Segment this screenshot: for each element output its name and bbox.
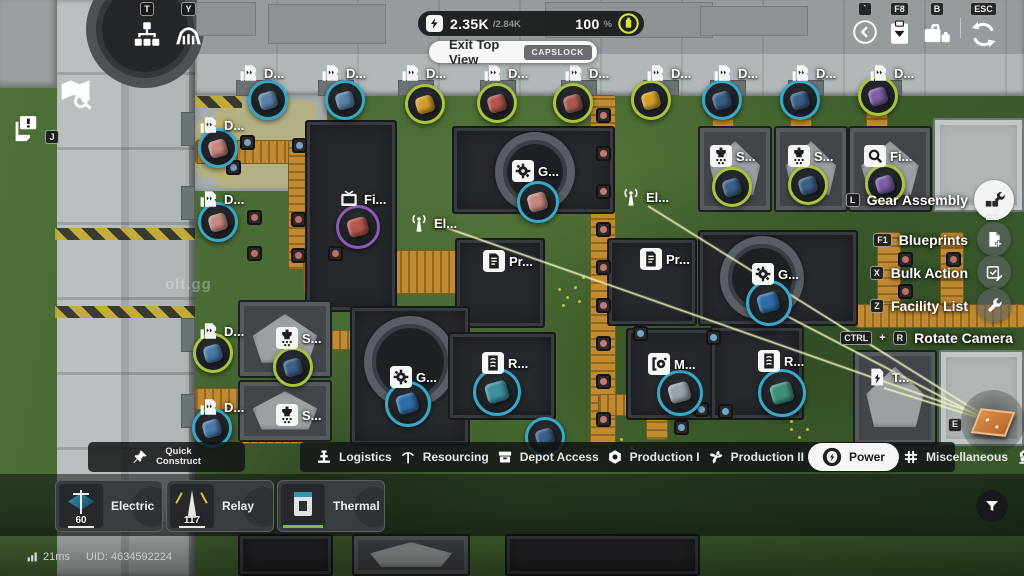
item-blob <box>867 85 889 106</box>
conveyor-node <box>596 260 611 275</box>
electricity-icon <box>426 15 443 32</box>
menu-item-bulk-action[interactable]: XBulk Action <box>870 265 968 281</box>
rooftop-panel <box>268 4 386 44</box>
item-marker[interactable] <box>780 80 820 120</box>
m-dock-icon <box>198 396 220 418</box>
back-icon <box>852 19 878 45</box>
m-gear-icon <box>512 160 534 182</box>
item-blob <box>484 379 511 404</box>
item-blob <box>207 137 229 158</box>
facility-marker[interactable]: Fi... <box>338 188 386 210</box>
item-blob <box>562 92 584 113</box>
conveyor-node <box>718 404 733 419</box>
power-capacity-value: /2.84K <box>493 19 521 30</box>
grass-speckle <box>806 428 809 431</box>
card-thermal-bank[interactable]: ThermalBank <box>277 480 385 532</box>
card-thumbnail: 60 <box>59 484 103 528</box>
facility-marker[interactable]: G... <box>512 160 559 182</box>
conveyor-node <box>706 330 721 345</box>
map-search-icon <box>58 76 94 112</box>
conveyor-belt[interactable] <box>330 330 352 350</box>
facility-label: S... <box>302 331 322 346</box>
item-marker[interactable] <box>758 369 806 417</box>
facility-label: D... <box>346 66 366 81</box>
tab-production-ii[interactable]: Production II <box>704 443 808 471</box>
power-current-value: 2.35K <box>450 16 489 32</box>
m-doc-icon <box>640 248 662 270</box>
conveyor-node <box>596 412 611 427</box>
hud-divider <box>960 18 961 38</box>
facility-label: D... <box>738 66 758 81</box>
interact-key-hint: E <box>948 414 962 432</box>
blueprint-icon-button[interactable] <box>977 222 1011 256</box>
battery-icon <box>617 12 640 35</box>
facility-label: R... <box>784 354 804 369</box>
power-status-bar: 2.35K /2.84K 100 % <box>418 11 644 36</box>
capslock-key-hint: CAPSLOCK <box>524 45 593 60</box>
assembly-icon <box>983 189 1005 211</box>
thermal-pipe <box>294 492 312 497</box>
hazard-stripe <box>55 228 195 240</box>
facility-marker[interactable]: D... <box>563 62 609 84</box>
m-antenna-icon <box>620 186 642 208</box>
bulk-icon-button[interactable] <box>977 255 1011 289</box>
facility-marker[interactable]: D... <box>790 62 836 84</box>
notice-icon <box>10 112 40 144</box>
key-hint: L <box>846 193 860 207</box>
notice-button[interactable]: J <box>10 112 59 144</box>
rotate-icon <box>968 19 999 50</box>
facility-label: D... <box>224 118 244 133</box>
menu-item-label: Bulk Action <box>891 265 968 281</box>
facility-marker[interactable]: D... <box>712 62 758 84</box>
facility-label: El... <box>646 190 669 205</box>
card-relay-tower[interactable]: 117RelayTower <box>166 480 274 532</box>
facility-label: R... <box>508 356 528 371</box>
conveyor-node <box>596 184 611 199</box>
item-blob <box>526 191 549 213</box>
item-blob <box>395 392 421 416</box>
key-hint-f8: F8 <box>890 2 909 16</box>
count-underline <box>179 526 205 528</box>
facility-label: Fi... <box>364 192 386 207</box>
watermark: olt.gg <box>165 276 212 293</box>
m-doc-icon <box>483 250 505 272</box>
grass-speckle <box>566 296 569 299</box>
item-marker[interactable] <box>473 368 521 416</box>
menu-item-facility-list[interactable]: ZFacility List <box>870 298 968 314</box>
conveyor-node <box>596 336 611 351</box>
hazard-stripe <box>55 306 195 318</box>
tab-resourcing[interactable]: Resourcing <box>396 443 493 471</box>
item-blob <box>202 342 224 363</box>
facility-label: M... <box>674 357 696 372</box>
facility-marker[interactable]: D... <box>645 62 691 84</box>
item-marker[interactable] <box>657 370 703 416</box>
quick-construct-button[interactable]: Quick Construct <box>88 442 245 472</box>
tab-label: Depot Access <box>520 450 599 464</box>
facility-marker[interactable]: S... <box>788 145 834 167</box>
facility-label: T... <box>892 370 909 385</box>
rooftop-panel <box>700 6 808 36</box>
key-hint-y: Y <box>181 2 195 16</box>
menu-item-label: Facility List <box>891 298 968 314</box>
item-marker[interactable] <box>477 83 517 123</box>
m-crusher-icon <box>276 404 298 426</box>
tab-logistics[interactable]: Logistics <box>312 443 396 471</box>
m-gear-icon <box>390 366 412 388</box>
facility-label: D... <box>508 66 528 81</box>
card-thumbnail <box>281 484 325 528</box>
facility-label: D... <box>426 66 446 81</box>
conveyor-node <box>247 246 262 261</box>
key-hint-t: T <box>140 2 154 16</box>
item-blob <box>667 381 693 405</box>
funnel-icon <box>984 498 1000 514</box>
hazard-stripe <box>196 96 242 108</box>
item-marker[interactable] <box>248 80 288 120</box>
facility-label: D... <box>264 66 284 81</box>
blueprint-icon <box>985 230 1004 249</box>
facility-marker[interactable]: R... <box>758 350 804 372</box>
m-dock-icon <box>320 62 342 84</box>
item-blob <box>257 89 279 110</box>
conveyor-node <box>596 108 611 123</box>
build-category-toolbar: LogisticsResourcingDepot AccessProductio… <box>300 442 955 472</box>
tab-miscellaneous[interactable]: Miscellaneous <box>899 443 1012 471</box>
grass-speckle <box>574 286 577 289</box>
conveyor-node <box>247 210 262 225</box>
building-roof <box>370 542 452 567</box>
item-blob <box>282 356 304 377</box>
facility-label: S... <box>736 149 756 164</box>
key-hint: Z <box>870 299 884 313</box>
exit-mode-button[interactable]: ESC <box>968 2 999 50</box>
concrete-corner <box>0 0 57 88</box>
back-button[interactable]: ` <box>852 2 878 45</box>
card-count: 117 <box>184 515 200 526</box>
conveyor-node <box>633 326 648 341</box>
conveyor-node <box>674 420 689 435</box>
logistics-icon <box>316 449 332 465</box>
relay-beam <box>200 492 207 504</box>
inventory-button[interactable]: B <box>922 2 952 49</box>
key-hint-b: B <box>930 2 945 16</box>
facility-label: El... <box>434 216 457 231</box>
tab-depot-access[interactable]: Depot Access <box>493 443 603 471</box>
menu-item-blueprints[interactable]: F1Blueprints <box>873 232 968 248</box>
rooftop-panel <box>196 2 256 36</box>
facility-marker[interactable]: M... <box>648 353 696 375</box>
grid-icon <box>903 449 919 465</box>
signal-icon <box>26 550 39 563</box>
item-blob <box>711 89 733 110</box>
facility-marker[interactable]: El... <box>408 212 457 234</box>
facility-label: S... <box>302 408 322 423</box>
m-dock-icon <box>563 62 585 84</box>
m-search-icon <box>864 145 886 167</box>
facility-label: D... <box>224 192 244 207</box>
item-blob <box>486 92 508 113</box>
m-dock-icon <box>645 62 667 84</box>
m-antenna-icon <box>408 212 430 234</box>
key-hint: R <box>893 331 908 345</box>
dock-notch <box>181 112 195 146</box>
conveyor-node <box>291 212 306 227</box>
grass-speckle <box>558 288 561 291</box>
item-marker[interactable] <box>325 80 365 120</box>
facility-label: D... <box>671 66 691 81</box>
item-marker[interactable] <box>405 84 445 124</box>
facility-building[interactable] <box>853 350 937 446</box>
tab-label: Power <box>849 450 885 464</box>
efficiency-unit: % <box>604 19 612 30</box>
item-blob <box>797 174 819 195</box>
ping-value: 21ms <box>43 551 70 563</box>
facility-label: D... <box>224 324 244 339</box>
facility-label: Pr... <box>509 254 533 269</box>
item-marker[interactable] <box>273 347 313 387</box>
tab-label: Production II <box>731 450 804 464</box>
m-dock-icon <box>400 62 422 84</box>
key-hint: F1 <box>873 233 892 247</box>
tab-label: Logistics <box>339 450 392 464</box>
facility-marker[interactable]: D... <box>198 396 244 418</box>
card-electric-pylon[interactable]: 60ElectricPylon <box>55 480 163 532</box>
m-crusher-icon <box>710 145 732 167</box>
conveyor-node <box>596 146 611 161</box>
conveyor-node <box>898 284 913 299</box>
facility-label: G... <box>778 267 799 282</box>
m-monitor-icon <box>338 188 360 210</box>
plus-sign: + <box>879 332 885 344</box>
thermal-window <box>299 501 307 511</box>
m-dock-icon <box>198 114 220 136</box>
menu-item-gear-assembly[interactable]: LGear Assembly <box>846 192 968 208</box>
grass-speckle <box>798 436 801 439</box>
facility-marker[interactable]: T... <box>866 366 909 388</box>
menu-item-label: Blueprints <box>899 232 968 248</box>
rotate-camera-label: Rotate Camera <box>914 330 1013 346</box>
item-blob <box>201 417 223 438</box>
bulk-icon <box>985 263 1004 282</box>
briefcase-icon <box>922 19 952 49</box>
pin-icon <box>132 449 148 465</box>
facility-building[interactable] <box>505 534 700 576</box>
card-name: ThermalBank <box>333 499 380 513</box>
facility-label: Fi... <box>890 149 912 164</box>
tab-combat[interactable]: Combat <box>1012 443 1024 471</box>
item-blob <box>721 176 743 197</box>
facility-building[interactable] <box>352 534 470 576</box>
key-hint-backtick: ` <box>858 2 872 16</box>
uid-value: UID: 4634592224 <box>86 551 172 563</box>
facility-label: D... <box>816 66 836 81</box>
item-marker[interactable] <box>517 181 559 223</box>
pickaxe-icon <box>400 449 416 465</box>
m-dock-icon <box>238 62 260 84</box>
efficiency-value: 100 <box>575 16 599 32</box>
exit-top-view-label: Exit Top View <box>449 37 524 67</box>
bridge-view-button[interactable]: Y <box>174 2 203 48</box>
facility-label: G... <box>416 370 437 385</box>
thermal-charge-bar <box>283 525 323 528</box>
m-refine-icon <box>758 350 780 372</box>
facility-marker[interactable]: G... <box>390 366 437 388</box>
grass-speckle <box>790 428 793 431</box>
conveyor-node <box>328 246 343 261</box>
facility-marker[interactable]: D... <box>868 62 914 84</box>
facility-marker[interactable]: D... <box>198 114 244 136</box>
m-dock-icon <box>790 62 812 84</box>
facility-marker[interactable]: Fi... <box>864 145 912 167</box>
relay-art <box>185 490 199 518</box>
relay-beam <box>175 492 182 504</box>
facility-marker[interactable]: Pr... <box>640 248 690 270</box>
rotate-camera-hint: CTRL+RRotate Camera <box>840 330 1013 346</box>
facility-marker[interactable]: D... <box>198 320 244 342</box>
facility-marker[interactable]: S... <box>276 327 322 349</box>
item-blob <box>334 89 356 110</box>
facility-marker[interactable]: D... <box>198 188 244 210</box>
exit-top-view-button[interactable]: Exit Top View CAPSLOCK <box>429 41 597 63</box>
facility-marker[interactable]: Pr... <box>483 250 533 272</box>
card-thumbnail: 117 <box>170 484 214 528</box>
tab-label: Production I <box>630 450 700 464</box>
grass-speckle <box>620 438 623 441</box>
conveyor-node <box>596 374 611 389</box>
facility-label: S... <box>814 149 834 164</box>
clipboard-icon <box>886 19 913 46</box>
item-marker[interactable] <box>336 205 380 249</box>
m-dock-icon <box>198 188 220 210</box>
facility-marker[interactable]: D... <box>320 62 366 84</box>
status-bar: 21ms UID: 4634592224 <box>26 550 172 563</box>
card-name: RelayTower <box>222 499 254 513</box>
facility-label: D... <box>589 66 609 81</box>
facility-marker[interactable]: D... <box>400 62 446 84</box>
wrench-icon-button[interactable] <box>977 288 1011 322</box>
item-marker[interactable] <box>631 80 671 120</box>
quick-construct-line2: Construct <box>156 456 201 467</box>
grass-speckle <box>562 304 565 307</box>
facility-marker[interactable]: D... <box>238 62 284 84</box>
conveyor-node <box>291 248 306 263</box>
pylon-arm <box>73 493 89 495</box>
conveyor-node <box>596 222 611 237</box>
fan-icon <box>708 449 724 465</box>
facility-marker[interactable]: El... <box>620 186 669 208</box>
map-overview-button[interactable] <box>58 76 94 117</box>
facility-marker[interactable]: R... <box>482 352 528 374</box>
item-marker[interactable] <box>702 80 742 120</box>
item-blob <box>769 380 796 405</box>
quick-construct-line1: Quick <box>165 446 191 457</box>
item-blob <box>789 89 811 110</box>
item-marker[interactable] <box>746 280 792 326</box>
conveyor-node <box>240 135 255 150</box>
m-power-icon <box>866 366 888 388</box>
nut-icon <box>607 449 623 465</box>
game-viewport: D...D...D...D...D...D...D...D...D...D...… <box>0 0 1024 576</box>
facility-marker[interactable]: S... <box>276 404 322 426</box>
tab-label: Resourcing <box>423 450 489 464</box>
m-crusher-icon <box>276 327 298 349</box>
facility-marker[interactable]: S... <box>710 145 756 167</box>
item-blob <box>756 291 782 315</box>
item-marker[interactable] <box>712 167 752 207</box>
key-hint-esc: ESC <box>970 2 997 16</box>
item-blob <box>414 93 436 114</box>
menu-divider <box>986 214 999 216</box>
grass-speckle <box>790 420 793 423</box>
m-crusher-icon <box>788 145 810 167</box>
network-icon <box>132 19 162 49</box>
powernet-icon <box>822 447 842 467</box>
item-blob <box>640 89 662 110</box>
facility-label: G... <box>538 164 559 179</box>
card-name: ElectricPylon <box>111 499 154 513</box>
m-refine-icon <box>482 352 504 374</box>
dock-notch <box>181 186 195 220</box>
key-hint: X <box>870 266 884 280</box>
m-dock-icon <box>198 320 220 342</box>
conveyor-node <box>292 138 307 153</box>
wrench-icon <box>985 296 1004 315</box>
facility-label: D... <box>894 66 914 81</box>
menu-item-label: Gear Assembly <box>867 192 968 208</box>
item-marker[interactable] <box>788 165 828 205</box>
m-dock-icon <box>868 62 890 84</box>
tab-production-i[interactable]: Production I <box>603 443 704 471</box>
tab-power[interactable]: Power <box>808 443 899 471</box>
count-underline <box>68 526 94 528</box>
item-blob <box>207 211 229 232</box>
m-machine-icon <box>648 353 670 375</box>
tasks-button[interactable]: F8 <box>886 2 913 46</box>
conveyor-node <box>596 298 611 313</box>
key-hint: CTRL <box>840 331 872 345</box>
depot-icon <box>497 449 513 465</box>
key-hint-j: J <box>45 130 59 144</box>
filter-button[interactable] <box>976 490 1008 522</box>
item-blob <box>346 215 371 238</box>
facility-label: D... <box>224 400 244 415</box>
card-count: 60 <box>75 515 86 526</box>
grass-speckle <box>578 300 581 303</box>
facility-building[interactable] <box>238 534 333 576</box>
tech-tree-button[interactable]: T <box>132 2 162 49</box>
item-marker[interactable] <box>553 83 593 123</box>
facility-marker[interactable]: G... <box>752 263 799 285</box>
facility-label: Pr... <box>666 252 690 267</box>
tab-label: Miscellaneous <box>926 450 1008 464</box>
m-dock-icon <box>712 62 734 84</box>
bridge-icon <box>174 19 203 48</box>
m-gear-icon <box>752 263 774 285</box>
grass-speckle <box>582 276 585 279</box>
combat-icon <box>1016 449 1024 465</box>
